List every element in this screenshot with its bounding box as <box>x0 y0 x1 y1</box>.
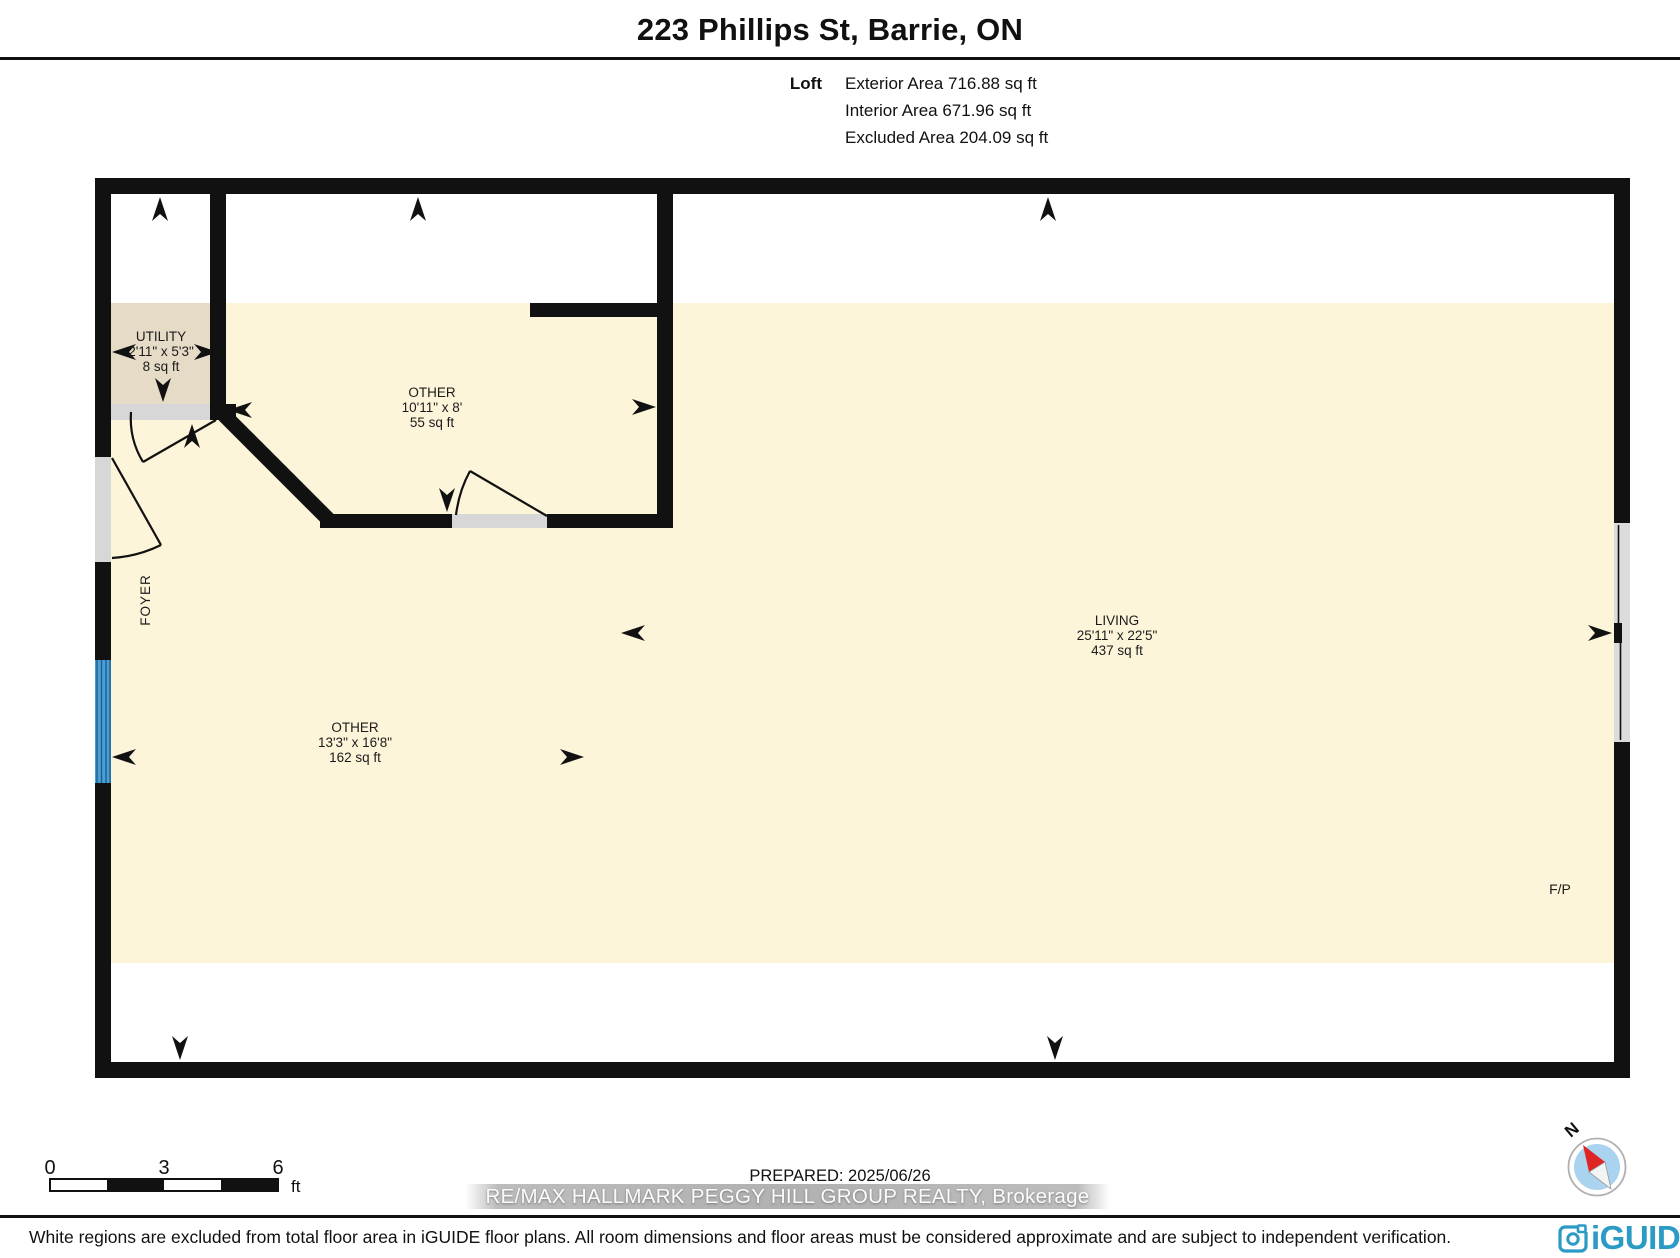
stub-wall <box>530 303 657 317</box>
right-window <box>1614 523 1630 742</box>
room-label-living: LIVING 25'11" x 22'5" 437 sq ft <box>1027 613 1207 658</box>
excluded-area-value: Excluded Area 204.09 sq ft <box>845 124 1048 151</box>
interior-area-value: Interior Area 671.96 sq ft <box>845 97 1031 124</box>
room-dimensions: 2'11" x 5'3" <box>96 344 226 359</box>
interior-cream-area <box>111 303 1614 963</box>
room-area: 8 sq ft <box>96 359 226 374</box>
area-summary: Loft Exterior Area 716.88 sq ft Interior… <box>622 70 1048 151</box>
room-area: 437 sq ft <box>1027 643 1207 658</box>
foyer-door-threshold <box>95 457 111 562</box>
area-row: Interior Area 671.96 sq ft <box>622 97 1048 124</box>
room-label-other-upper: OTHER 10'11" x 8' 55 sq ft <box>352 385 512 430</box>
room-name: UTILITY <box>96 329 226 344</box>
other-room-right-wall <box>657 194 673 528</box>
compass-icon: N <box>1561 1119 1625 1196</box>
room-dimensions: 10'11" x 8' <box>352 400 512 415</box>
scale-tick-6: 6 <box>272 1157 283 1179</box>
room-name: OTHER <box>275 720 435 735</box>
floor-name-label: Loft <box>622 70 822 97</box>
prepared-date: PREPARED: 2025/06/26 <box>640 1167 1040 1186</box>
header-divider <box>0 57 1680 60</box>
scale-tick-0: 0 <box>44 1157 55 1179</box>
exterior-area-value: Exterior Area 716.88 sq ft <box>845 70 1037 97</box>
room-dimensions: 25'11" x 22'5" <box>1027 628 1207 643</box>
area-row: Loft Exterior Area 716.88 sq ft <box>622 70 1048 97</box>
area-row: Excluded Area 204.09 sq ft <box>622 124 1048 151</box>
other-room-bottom-wall-right <box>547 514 673 528</box>
iguide-camera-icon <box>1557 1222 1589 1254</box>
room-name: LIVING <box>1027 613 1207 628</box>
floorplan-page: N 0 3 6 ft 223 Phillips St, Barrie, ON L… <box>0 0 1680 1258</box>
room-label-foyer: FOYER <box>138 560 154 640</box>
fireplace-label: F/P <box>1538 881 1582 897</box>
other-room-bottom-wall-left <box>320 514 452 528</box>
scale-bar: 0 3 6 ft <box>44 1157 300 1196</box>
room-name: OTHER <box>352 385 512 400</box>
page-title: 223 Phillips St, Barrie, ON <box>0 12 1660 48</box>
room-area: 55 sq ft <box>352 415 512 430</box>
floor-areas <box>111 194 1614 1062</box>
room-label-other-lower: OTHER 13'3" x 16'8" 162 sq ft <box>275 720 435 765</box>
room-area: 162 sq ft <box>275 750 435 765</box>
utility-door-threshold <box>111 404 210 420</box>
room-dimensions: 13'3" x 16'8" <box>275 735 435 750</box>
iguide-wordmark: iGUIDE <box>1591 1219 1680 1257</box>
room-label-utility: UTILITY 2'11" x 5'3" 8 sq ft <box>96 329 226 374</box>
brokerage-watermark: RE/MAX HALLMARK PEGGY HILL GROUP REALTY,… <box>465 1184 1110 1209</box>
scale-tick-3: 3 <box>158 1157 169 1179</box>
scale-unit-label: ft <box>291 1177 301 1196</box>
compass-north-label: N <box>1561 1119 1583 1141</box>
utility-right-wall <box>210 194 226 420</box>
left-window <box>95 660 111 783</box>
floor-plan-graphics: N 0 3 6 ft <box>0 0 1680 1258</box>
footer-divider <box>0 1215 1680 1218</box>
footer-disclaimer: White regions are excluded from total fl… <box>29 1227 1451 1248</box>
iguide-logo: iGUIDE <box>1557 1219 1680 1257</box>
other-room-door-threshold <box>452 514 547 528</box>
